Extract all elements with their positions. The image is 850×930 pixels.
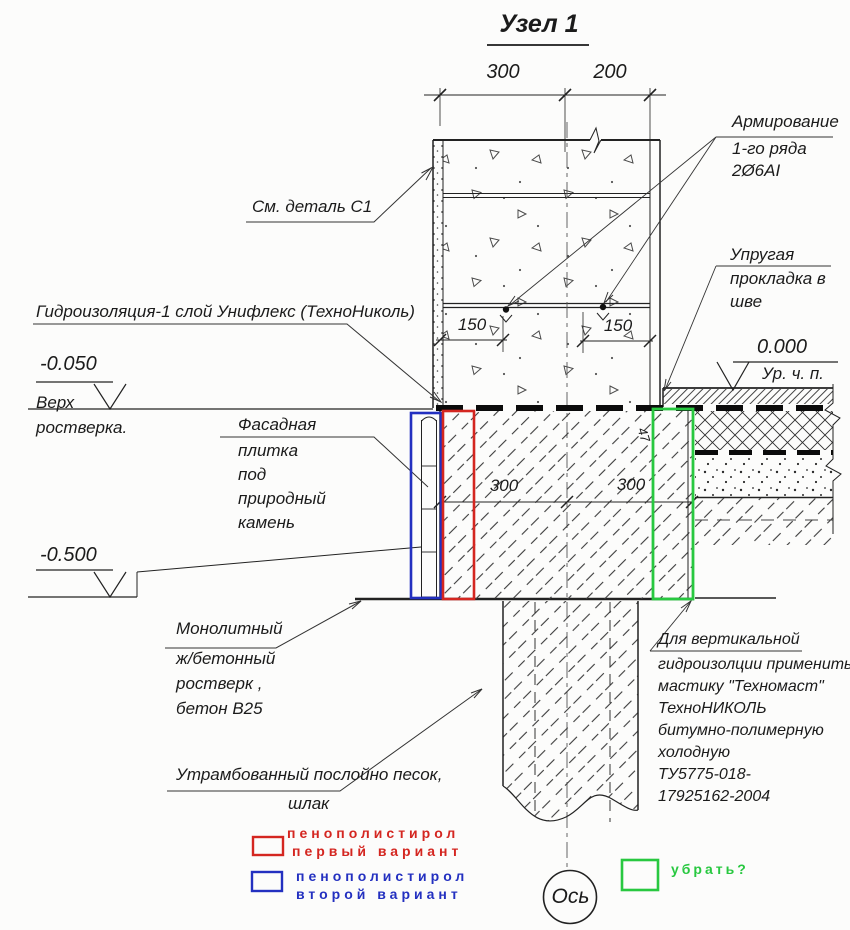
waterproofing-label: Гидроизоляция-1 слой Унифлекс (ТехноНико… <box>36 302 415 322</box>
vertical-wp-label-2: гидроизолции применить <box>658 656 850 674</box>
dim-grillage-left: 300 <box>478 476 530 496</box>
base-layer <box>695 498 833 545</box>
reinforcement-label-2: 1-го ряда <box>732 139 807 159</box>
axis-label: Ось <box>544 885 597 909</box>
elevation-floor-sub: Ур. ч. п. <box>762 364 824 384</box>
vertical-wp-label-6: холодную <box>658 744 730 762</box>
rebar-dot-right <box>600 304 606 310</box>
monolithic-label-2: ж/бетонный <box>176 649 275 669</box>
elevation-grillage-top-sub1: Верх <box>36 393 74 413</box>
insulation-layer <box>695 411 833 450</box>
elastic-gasket-label-1: Упругая <box>730 245 794 265</box>
vertical-wp-label-8: 17925162-2004 <box>658 788 770 806</box>
legend-green-swatch <box>622 860 658 890</box>
elevation-grillage-bottom: -0.500 <box>40 544 97 567</box>
elastic-gasket-label-3: шве <box>730 292 762 312</box>
reinforcement-label-3: 2Ø6АI <box>732 161 780 181</box>
facade-tile-label-3: под <box>238 465 266 485</box>
facade-tile-label-2: плитка <box>238 441 298 461</box>
legend-blue-line-2: второй вариант <box>296 886 462 902</box>
vertical-wp-label-5: битумно-полимерную <box>658 722 824 740</box>
elevation-arrow-grillage-top <box>94 384 126 409</box>
elevation-grillage-top: -0.050 <box>40 353 97 376</box>
compacted-label-1: Утрамбованный послойно песок, <box>176 765 442 785</box>
elastic-gasket-label-2: прокладка в <box>730 269 826 289</box>
vertical-wp-label-1: Для вертикальной <box>658 631 800 649</box>
legend-green-label: убрать? <box>671 861 749 877</box>
elevation-arrow-grillage-bottom <box>94 572 126 597</box>
screed-layer <box>663 389 833 404</box>
dim-top-left: 300 <box>477 61 529 84</box>
facade-tile-label-1: Фасадная <box>238 415 316 435</box>
monolithic-label-1: Монолитный <box>176 619 283 639</box>
monolithic-label-4: бетон В25 <box>176 699 263 719</box>
concrete-wall <box>433 128 660 408</box>
sand-layer <box>695 456 833 497</box>
dim-wall-right: 150 <box>592 316 644 336</box>
drawing-title: Узел 1 <box>486 10 592 39</box>
reinforcement-label-1: Армирование <box>732 112 839 132</box>
legend-red-swatch <box>253 837 283 855</box>
elevation-floor: 0.000 <box>757 336 807 359</box>
dim-grillage-right: 300 <box>605 475 657 495</box>
facade-tile-label-4: природный <box>238 489 326 509</box>
elevation-arrow-floor <box>717 362 749 390</box>
facade-tile-label-5: камень <box>238 513 295 533</box>
vertical-wp-label-4: ТехноНИКОЛЬ <box>658 700 767 718</box>
legend-red-line-2: первый вариант <box>292 843 462 859</box>
detail-drawing-page: { "title": "Узел 1", "dimensions": { "to… <box>0 0 850 930</box>
legend-blue-swatch <box>252 872 282 891</box>
elevation-grillage-top-sub2: ростверка. <box>36 418 127 438</box>
legend-blue-line-1: пенополистирол <box>296 868 468 884</box>
dim-wall-left: 150 <box>446 315 498 335</box>
dim-top-right: 200 <box>584 61 636 84</box>
monolithic-label-3: ростверк , <box>176 674 262 694</box>
vertical-wp-label-7: ТУ5775-018- <box>658 766 751 784</box>
legend-red-line-1: пенополистирол <box>287 825 459 841</box>
see-detail-label: См. деталь С1 <box>252 197 372 217</box>
grillage <box>440 411 694 599</box>
vertical-wp-label-3: мастику "Техномаст" <box>658 678 824 696</box>
rebar-dot-left <box>503 306 509 312</box>
compacted-label-2: шлак <box>288 794 329 814</box>
pile <box>503 601 638 822</box>
